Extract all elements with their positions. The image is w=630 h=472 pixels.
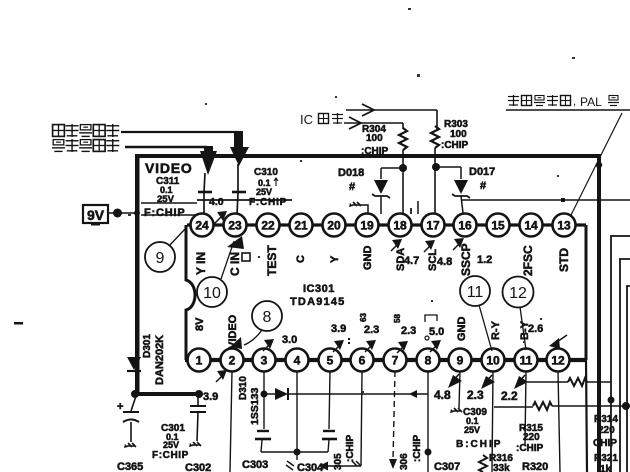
- svg-text:16: 16: [458, 219, 472, 233]
- svg-text:11: 11: [520, 354, 533, 368]
- svg-text:3.9: 3.9: [203, 391, 218, 403]
- svg-text:4: 4: [294, 354, 301, 368]
- svg-text:F:CHIP: F:CHIP: [152, 450, 189, 461]
- svg-text:3: 3: [261, 354, 268, 368]
- svg-text:5: 5: [327, 354, 334, 368]
- svg-text:4.8: 4.8: [437, 256, 452, 268]
- svg-text:19: 19: [360, 219, 374, 233]
- svg-text:PAL: PAL: [580, 95, 602, 109]
- svg-text:D017: D017: [469, 166, 495, 178]
- svg-text:C365: C365: [117, 461, 143, 472]
- svg-text:1k: 1k: [600, 464, 612, 472]
- svg-text:220: 220: [598, 425, 615, 436]
- svg-text::CHIP: :CHIP: [412, 434, 423, 462]
- svg-text:DAN202K: DAN202K: [154, 335, 166, 385]
- svg-text:100: 100: [366, 133, 383, 144]
- svg-text:1.2: 1.2: [477, 254, 492, 266]
- svg-text:9V: 9V: [87, 207, 105, 223]
- svg-text:4.0: 4.0: [209, 196, 224, 208]
- svg-text:58: 58: [393, 314, 402, 323]
- svg-text:100: 100: [450, 129, 467, 140]
- svg-text:CHIP: CHIP: [593, 438, 617, 449]
- svg-text:1SS133: 1SS133: [249, 387, 261, 425]
- svg-text:13: 13: [557, 219, 571, 233]
- svg-text:21: 21: [294, 219, 308, 233]
- svg-text:33k: 33k: [493, 463, 510, 472]
- svg-text:F:CHIP: F:CHIP: [144, 207, 185, 219]
- svg-text:GND: GND: [456, 317, 468, 342]
- svg-text:63: 63: [359, 313, 368, 322]
- svg-text:,: ,: [573, 96, 576, 108]
- svg-text::CHIP: :CHIP: [516, 443, 544, 454]
- svg-text:C304: C304: [297, 462, 324, 472]
- svg-text:C310: C310: [254, 167, 278, 178]
- svg-text:2.3: 2.3: [364, 324, 379, 336]
- svg-text:STD: STD: [557, 248, 571, 272]
- svg-text:8V: 8V: [194, 317, 206, 331]
- svg-text:2: 2: [229, 354, 236, 368]
- svg-text:Y IN: Y IN: [194, 252, 208, 275]
- svg-text::CHIP: :CHIP: [361, 146, 389, 157]
- svg-text:7: 7: [392, 354, 399, 368]
- svg-text:306: 306: [399, 453, 410, 470]
- svg-text:R314: R314: [594, 414, 618, 425]
- svg-text:2FSC: 2FSC: [521, 245, 535, 276]
- svg-text:VIDEO: VIDEO: [145, 160, 193, 176]
- svg-text:14: 14: [524, 219, 538, 233]
- svg-text:25V: 25V: [163, 440, 179, 450]
- svg-text:2.6: 2.6: [528, 323, 543, 335]
- svg-text:1: 1: [196, 354, 203, 368]
- svg-text:4.7: 4.7: [404, 255, 419, 267]
- svg-text:5.0: 5.0: [429, 326, 444, 338]
- svg-text:25V: 25V: [464, 425, 480, 435]
- svg-text:2.3: 2.3: [467, 388, 484, 402]
- svg-text:12: 12: [509, 285, 527, 302]
- svg-text:2.2: 2.2: [501, 389, 518, 403]
- svg-text:23: 23: [228, 219, 242, 233]
- svg-text:R320: R320: [522, 461, 548, 472]
- svg-text:TEST: TEST: [265, 245, 279, 276]
- svg-text:R321: R321: [594, 453, 618, 464]
- svg-text:220: 220: [523, 432, 540, 443]
- svg-text:C302: C302: [185, 462, 211, 472]
- svg-text:12: 12: [551, 354, 565, 368]
- svg-text:R-Y: R-Y: [490, 320, 502, 340]
- svg-text:20: 20: [327, 219, 341, 233]
- svg-text:11: 11: [467, 284, 484, 301]
- svg-text:TDA9145: TDA9145: [290, 296, 345, 308]
- svg-text:9: 9: [457, 354, 464, 368]
- svg-text:GND: GND: [362, 246, 374, 271]
- svg-text:C: C: [295, 255, 307, 263]
- svg-text:C303: C303: [242, 459, 268, 471]
- svg-text:8: 8: [425, 354, 432, 368]
- svg-text:25V: 25V: [256, 187, 272, 197]
- svg-text:3.9: 3.9: [331, 323, 346, 335]
- svg-text:C307: C307: [434, 461, 460, 472]
- svg-text::CHIP: :CHIP: [345, 434, 356, 462]
- svg-text:9: 9: [156, 250, 165, 267]
- svg-text::CHIP: :CHIP: [441, 140, 469, 151]
- svg-text:IC301: IC301: [303, 283, 335, 295]
- svg-text:10: 10: [486, 354, 500, 368]
- svg-text:2.3: 2.3: [401, 325, 416, 337]
- svg-text:17: 17: [426, 219, 440, 233]
- svg-text:Y: Y: [329, 255, 341, 263]
- svg-text:6: 6: [359, 354, 366, 368]
- svg-text:305: 305: [333, 453, 344, 470]
- svg-text:18: 18: [393, 219, 407, 233]
- svg-text:B:CHIP: B:CHIP: [456, 439, 502, 450]
- svg-text:IC: IC: [300, 112, 313, 127]
- svg-text:10: 10: [203, 285, 221, 302]
- svg-text:24: 24: [195, 219, 209, 233]
- svg-text:15: 15: [491, 219, 505, 233]
- svg-text:SSCP: SSCP: [459, 243, 473, 276]
- svg-text:8: 8: [263, 309, 272, 326]
- svg-text:22: 22: [261, 219, 275, 233]
- svg-text:3.0: 3.0: [282, 334, 297, 346]
- svg-text:F:CHIP: F:CHIP: [249, 197, 287, 208]
- svg-text:D018: D018: [338, 167, 364, 179]
- svg-text:#: #: [480, 180, 486, 192]
- svg-text:D301: D301: [142, 334, 153, 358]
- svg-text:D310: D310: [238, 376, 249, 400]
- svg-text:#: #: [349, 181, 355, 193]
- svg-text:+: +: [117, 401, 123, 413]
- svg-text:4.8: 4.8: [434, 388, 451, 402]
- svg-text:C IN: C IN: [228, 252, 242, 276]
